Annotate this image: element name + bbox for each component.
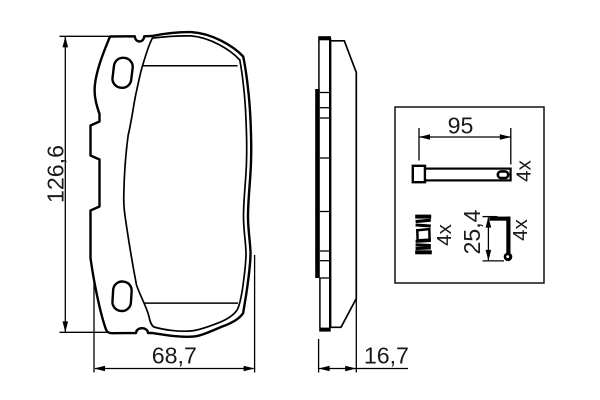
svg-text:25,4: 25,4 xyxy=(459,209,485,254)
svg-text:16,7: 16,7 xyxy=(364,342,409,368)
svg-text:4x: 4x xyxy=(509,218,532,240)
svg-text:4x: 4x xyxy=(513,159,536,181)
svg-text:126,6: 126,6 xyxy=(43,145,69,203)
svg-text:68,7: 68,7 xyxy=(152,342,197,368)
svg-text:4x: 4x xyxy=(433,223,456,245)
svg-text:95: 95 xyxy=(448,112,474,138)
